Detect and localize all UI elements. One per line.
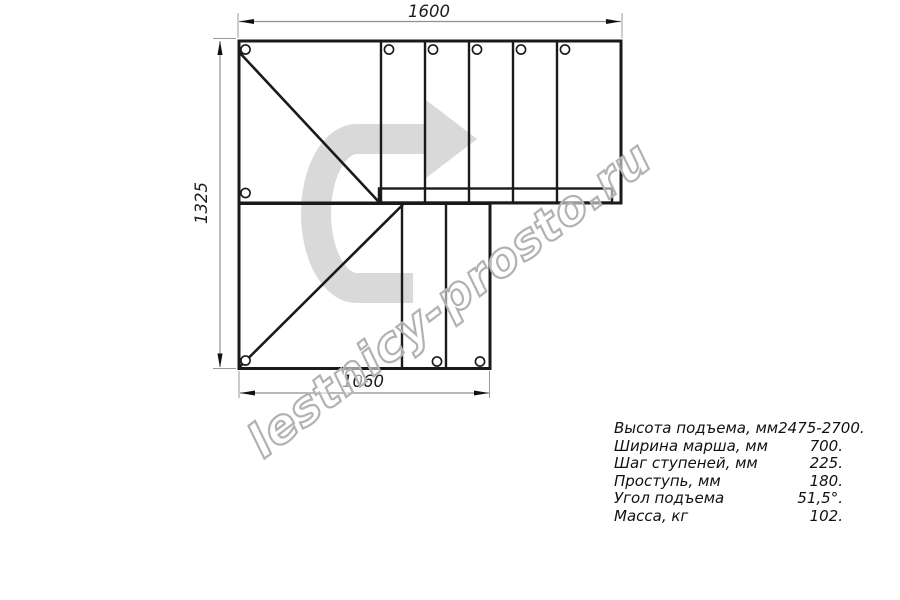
spec-value: 102. [810, 508, 843, 526]
spec-row: Угол подъема 51,5°. [614, 490, 843, 508]
spec-value: 700. [810, 438, 843, 456]
spec-label: Шаг ступеней, мм [614, 455, 758, 473]
top-dimension-label: 1600 [408, 2, 450, 21]
spec-row: Шаг ступеней, мм 225. [614, 455, 843, 473]
left-dimension-label: 1325 [192, 182, 211, 224]
spec-label: Угол подъема [614, 490, 724, 508]
spec-table: Высота подъема, мм 2475-2700. Ширина мар… [614, 420, 843, 526]
watermark-text: lestnicy-prosto.ru [237, 130, 662, 469]
spec-label: Высота подъема, мм [614, 420, 778, 438]
spec-value: 51,5°. [797, 490, 843, 508]
spec-row: Проступь, мм 180. [614, 473, 843, 491]
direction-arrow-icon [316, 100, 477, 288]
spec-label: Ширина марша, мм [614, 438, 768, 456]
spec-label: Проступь, мм [614, 473, 721, 491]
spec-value: 225. [810, 455, 843, 473]
spec-row: Масса, кг 102. [614, 508, 843, 526]
spec-value: 2475-2700. [778, 420, 865, 438]
spec-row: Ширина марша, мм 700. [614, 438, 843, 456]
stair-drawing-page: { "watermark": { "text": "lestnicy-prost… [0, 0, 900, 600]
spec-label: Масса, кг [614, 508, 688, 526]
spec-row: Высота подъема, мм 2475-2700. [614, 420, 843, 438]
spec-value: 180. [810, 473, 843, 491]
upper-flight-steps [381, 41, 557, 203]
